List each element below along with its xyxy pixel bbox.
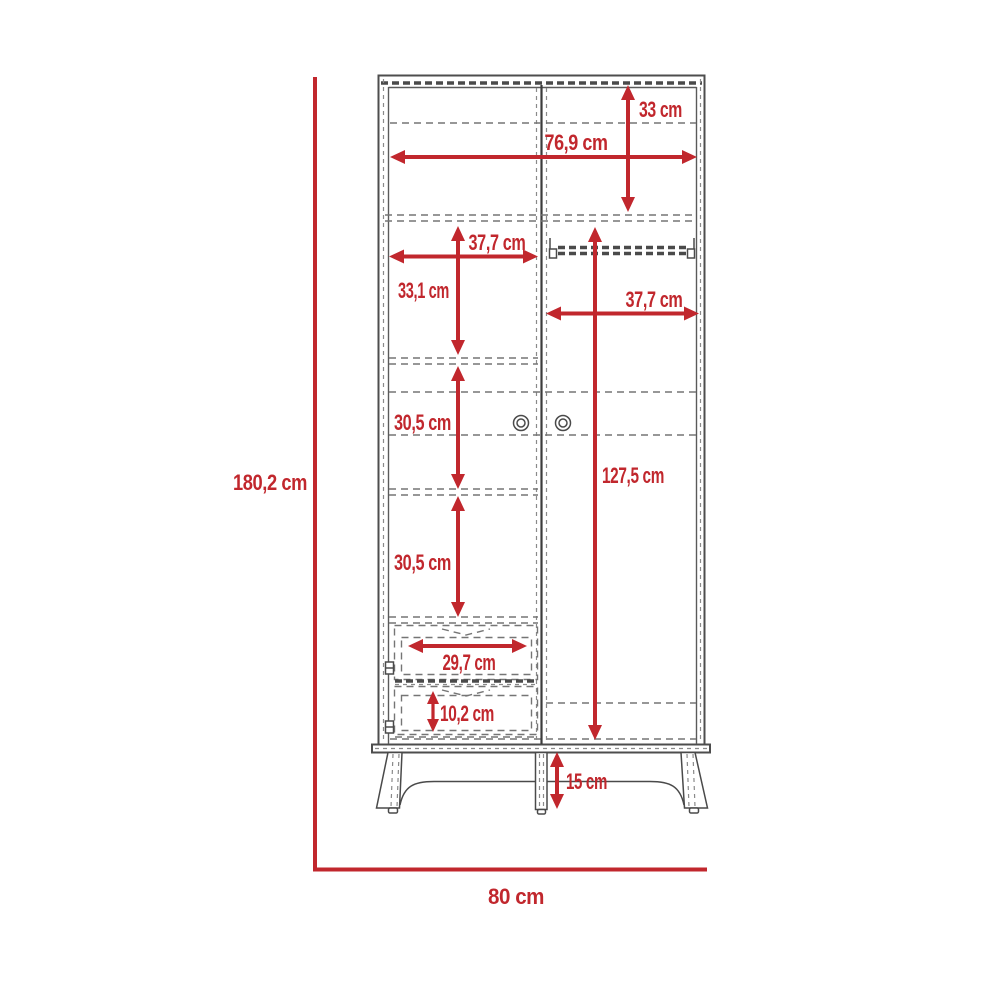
dim-label-overall-width: 80 cm [488, 884, 544, 909]
dim-label-leg-height: 15 cm [566, 769, 607, 794]
dim-label-top-section-height: 33 cm [639, 97, 682, 122]
dimension-diagram: 180,2 cm 80 cm 33 cm 76,9 cm 37,7 cm 33,… [0, 0, 1000, 1000]
dim-label-left-upper-section-height: 33,1 cm [398, 278, 449, 303]
right-leg-foot [690, 808, 699, 813]
left-leg-foot [389, 808, 398, 813]
dim-label-left-middle-section-height: 30,5 cm [394, 410, 451, 435]
dim-label-right-door-interior-height: 127,5 cm [602, 463, 664, 488]
middle-leg [536, 753, 548, 810]
left-door-knob [514, 416, 529, 431]
right-door-knob [556, 416, 571, 431]
dim-label-drawer-width: 29,7 cm [443, 650, 496, 675]
dim-label-left-section-width: 37,7 cm [469, 230, 526, 255]
middle-leg-foot [538, 810, 546, 815]
dim-label-drawer-height: 10,2 cm [440, 701, 494, 726]
dim-label-interior-width: 76,9 cm [545, 130, 608, 155]
dim-label-left-lower-section-height: 30,5 cm [394, 550, 451, 575]
dim-label-overall-height: 180,2 cm [233, 470, 307, 495]
rod-bracket-right [688, 249, 695, 258]
base-strip [372, 745, 710, 753]
rod-bracket-left [550, 249, 557, 258]
wardrobe-dimension-drawing: 180,2 cm 80 cm 33 cm 76,9 cm 37,7 cm 33,… [0, 0, 1000, 1000]
dim-label-right-section-width: 37,7 cm [626, 287, 683, 312]
